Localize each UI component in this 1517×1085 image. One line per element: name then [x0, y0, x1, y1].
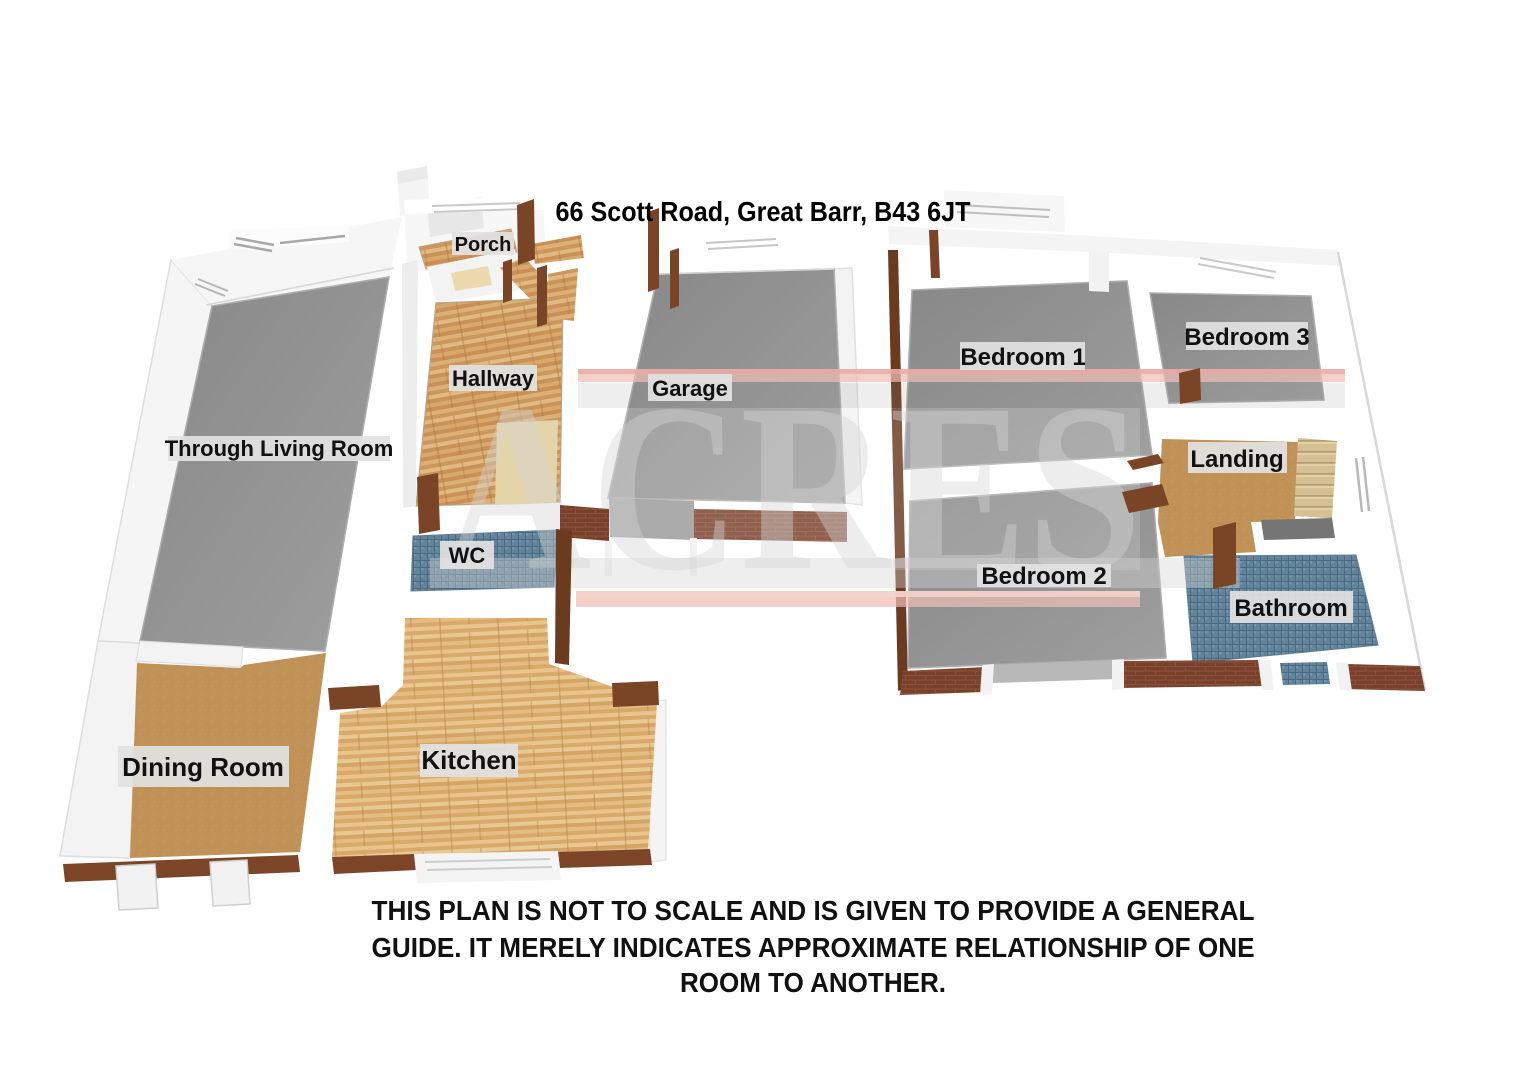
svg-text:WC: WC	[449, 543, 486, 568]
svg-text:Kitchen: Kitchen	[421, 745, 516, 775]
svg-text:Bathroom: Bathroom	[1234, 595, 1347, 622]
svg-text:Landing: Landing	[1190, 446, 1283, 473]
svg-text:Dining Room: Dining Room	[122, 752, 284, 782]
svg-text:Bedroom 1: Bedroom 1	[960, 344, 1085, 371]
svg-text:ROOM TO ANOTHER.: ROOM TO ANOTHER.	[680, 967, 946, 998]
svg-text:GUIDE. IT MERELY INDICATES APP: GUIDE. IT MERELY INDICATES APPROXIMATE R…	[372, 932, 1255, 963]
svg-text:Through Living Room: Through Living Room	[165, 436, 394, 461]
svg-text:Bedroom 3: Bedroom 3	[1184, 324, 1309, 351]
svg-text:Porch: Porch	[455, 234, 512, 256]
svg-text:Hallway: Hallway	[452, 366, 535, 391]
svg-text:THIS PLAN IS NOT TO SCALE AND: THIS PLAN IS NOT TO SCALE AND IS GIVEN T…	[372, 895, 1255, 926]
svg-text:Garage: Garage	[652, 376, 728, 401]
svg-text:Bedroom 2: Bedroom 2	[981, 563, 1106, 590]
svg-text:66 Scott Road, Great Barr, B43: 66 Scott Road, Great Barr, B43 6JT	[556, 196, 971, 227]
